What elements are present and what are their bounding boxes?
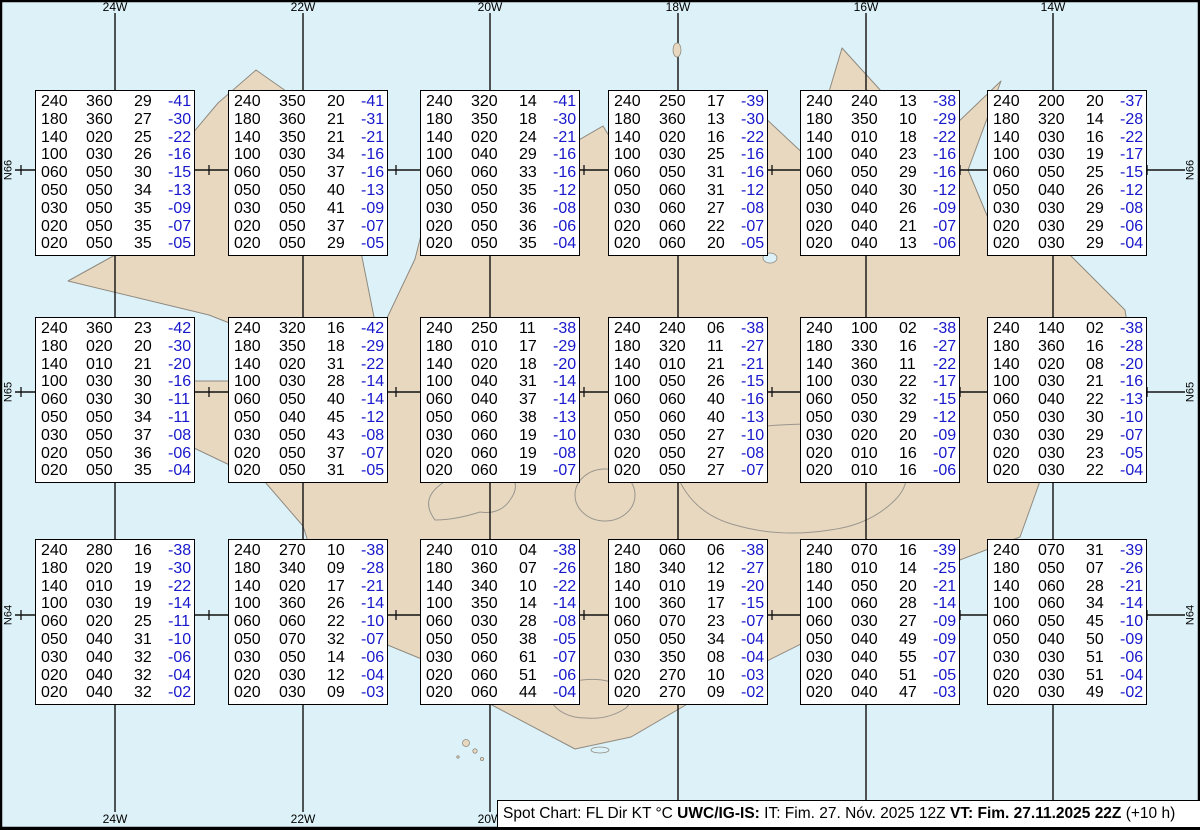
- spot-box-r1c1: 24036029-4118036027-3014002025-221000302…: [35, 90, 195, 256]
- level-row: 18036016-28: [993, 338, 1146, 356]
- level-row: 02005031-05: [234, 462, 387, 480]
- dir-cell: 040: [851, 649, 899, 667]
- temp-cell: -13: [361, 182, 388, 200]
- temp-cell: -02: [1120, 684, 1147, 702]
- dir-cell: 070: [1038, 542, 1086, 560]
- dir-cell: 060: [471, 667, 519, 685]
- level-row: 24001004-38: [426, 542, 579, 560]
- level-row: 06003028-08: [426, 613, 579, 631]
- temp-cell: -15: [741, 595, 768, 613]
- fl-cell: 050: [614, 182, 659, 200]
- fl-cell: 140: [993, 129, 1038, 147]
- dir-cell: 060: [1038, 595, 1086, 613]
- kt-cell: 25: [1086, 164, 1120, 182]
- dir-cell: 030: [471, 613, 519, 631]
- level-row: 02003029-04: [993, 235, 1146, 253]
- temp-cell: -22: [168, 578, 195, 596]
- fl-cell: 020: [426, 235, 471, 253]
- fl-cell: 020: [41, 684, 86, 702]
- temp-cell: -21: [1120, 578, 1147, 596]
- temp-cell: -26: [553, 560, 580, 578]
- dir-cell: 270: [659, 684, 707, 702]
- temp-cell: -04: [741, 631, 768, 649]
- dir-cell: 050: [86, 218, 134, 236]
- fl-cell: 180: [234, 111, 279, 129]
- temp-cell: -09: [933, 200, 960, 218]
- kt-cell: 16: [1086, 338, 1120, 356]
- fl-cell: 050: [614, 631, 659, 649]
- kt-cell: 49: [1086, 684, 1120, 702]
- temp-cell: -06: [168, 649, 195, 667]
- kt-cell: 11: [899, 356, 933, 374]
- dir-cell: 350: [851, 111, 899, 129]
- temp-cell: -29: [933, 111, 960, 129]
- dir-cell: 360: [86, 320, 134, 338]
- spot-box-r2c5: 24010002-3818033016-2714036011-221000302…: [800, 317, 960, 483]
- fl-cell: 180: [234, 560, 279, 578]
- kt-cell: 35: [519, 235, 553, 253]
- fl-cell: 180: [41, 338, 86, 356]
- level-row: 18034009-28: [234, 560, 387, 578]
- fl-cell: 240: [806, 93, 851, 111]
- fl-cell: 020: [614, 218, 659, 236]
- level-row: 05004026-12: [993, 182, 1146, 200]
- level-row: 18035018-29: [234, 338, 387, 356]
- dir-cell: 040: [851, 631, 899, 649]
- level-row: 06005025-15: [993, 164, 1146, 182]
- temp-cell: -14: [553, 595, 580, 613]
- kt-cell: 31: [707, 164, 741, 182]
- kt-cell: 40: [327, 391, 361, 409]
- temp-cell: -38: [361, 542, 388, 560]
- dir-cell: 050: [86, 200, 134, 218]
- dir-cell: 060: [471, 427, 519, 445]
- fl-cell: 050: [234, 409, 279, 427]
- temp-cell: -15: [933, 391, 960, 409]
- temp-cell: -06: [553, 667, 580, 685]
- level-row: 06006033-16: [426, 164, 579, 182]
- parallel-label-right-N64: N64: [1186, 605, 1197, 625]
- level-row: 24024006-38: [614, 320, 767, 338]
- kt-cell: 23: [899, 146, 933, 164]
- kt-cell: 29: [1086, 218, 1120, 236]
- fl-cell: 180: [993, 560, 1038, 578]
- level-row: 14005020-21: [806, 578, 959, 596]
- level-row: 24010002-38: [806, 320, 959, 338]
- fl-cell: 140: [234, 578, 279, 596]
- fl-cell: 050: [426, 631, 471, 649]
- kt-cell: 34: [134, 182, 168, 200]
- kt-cell: 35: [134, 462, 168, 480]
- fl-cell: 030: [993, 427, 1038, 445]
- temp-cell: -09: [933, 613, 960, 631]
- spot-box-r1c2: 24035020-4118036021-3114035021-211000303…: [228, 90, 388, 256]
- level-row: 18036021-31: [234, 111, 387, 129]
- temp-cell: -05: [361, 462, 388, 480]
- dir-cell: 020: [86, 338, 134, 356]
- kt-cell: 27: [707, 427, 741, 445]
- dir-cell: 060: [471, 164, 519, 182]
- temp-cell: -08: [741, 200, 768, 218]
- kt-cell: 19: [1086, 146, 1120, 164]
- level-row: 18036007-26: [426, 560, 579, 578]
- temp-cell: -12: [933, 182, 960, 200]
- dir-cell: 050: [279, 164, 327, 182]
- dir-cell: 030: [279, 146, 327, 164]
- dir-cell: 050: [659, 462, 707, 480]
- temp-cell: -38: [553, 542, 580, 560]
- kt-cell: 07: [519, 560, 553, 578]
- dir-cell: 040: [471, 373, 519, 391]
- meridian-label-top-18W: 18W: [666, 1, 691, 13]
- kt-cell: 29: [519, 146, 553, 164]
- level-row: 02005037-07: [234, 445, 387, 463]
- temp-cell: -07: [361, 218, 388, 236]
- level-row: 02004051-05: [806, 667, 959, 685]
- fl-cell: 030: [426, 427, 471, 445]
- kt-cell: 36: [519, 200, 553, 218]
- temp-cell: -08: [553, 613, 580, 631]
- dir-cell: 010: [659, 356, 707, 374]
- level-row: 03005036-08: [426, 200, 579, 218]
- dir-cell: 100: [851, 320, 899, 338]
- kt-cell: 26: [1086, 182, 1120, 200]
- kt-cell: 19: [134, 595, 168, 613]
- temp-cell: -06: [553, 218, 580, 236]
- dir-cell: 030: [1038, 667, 1086, 685]
- level-row: 05006031-12: [614, 182, 767, 200]
- dir-cell: 050: [471, 182, 519, 200]
- meridian-label-top-14W: 14W: [1041, 1, 1066, 13]
- fl-cell: 020: [41, 218, 86, 236]
- level-row: 18032014-28: [993, 111, 1146, 129]
- temp-cell: -14: [553, 373, 580, 391]
- temp-cell: -38: [553, 320, 580, 338]
- fl-cell: 030: [806, 200, 851, 218]
- temp-cell: -27: [741, 560, 768, 578]
- level-row: 06004037-14: [426, 391, 579, 409]
- fl-cell: 180: [41, 560, 86, 578]
- level-row: 18005007-26: [993, 560, 1146, 578]
- dir-cell: 050: [86, 462, 134, 480]
- spot-box-r2c1: 24036023-4218002020-3014001021-201000303…: [35, 317, 195, 483]
- spot-box-r3c6: 24007031-3918005007-2614006028-211000603…: [987, 539, 1147, 705]
- dir-cell: 030: [279, 373, 327, 391]
- kt-cell: 19: [519, 445, 553, 463]
- temp-cell: -11: [168, 391, 194, 409]
- dir-cell: 030: [86, 391, 134, 409]
- kt-cell: 30: [134, 373, 168, 391]
- level-row: 05004049-09: [806, 631, 959, 649]
- fl-cell: 030: [614, 200, 659, 218]
- dir-cell: 030: [1038, 427, 1086, 445]
- fl-cell: 180: [614, 338, 659, 356]
- temp-cell: -16: [361, 164, 388, 182]
- level-row: 14002018-20: [426, 356, 579, 374]
- kt-cell: 06: [707, 542, 741, 560]
- fl-cell: 100: [234, 373, 279, 391]
- dir-cell: 240: [851, 93, 899, 111]
- temp-cell: -07: [933, 445, 960, 463]
- dir-cell: 060: [659, 182, 707, 200]
- fl-cell: 020: [41, 667, 86, 685]
- temp-cell: -38: [933, 320, 960, 338]
- kt-cell: 23: [707, 613, 741, 631]
- kt-cell: 22: [1086, 391, 1120, 409]
- fl-cell: 180: [426, 560, 471, 578]
- fl-cell: 100: [426, 146, 471, 164]
- footer-text-segment: VT: Fim. 27.11.2025 22Z: [950, 805, 1121, 823]
- temp-cell: -22: [553, 578, 580, 596]
- level-row: 03002020-09: [806, 427, 959, 445]
- temp-cell: -22: [741, 129, 768, 147]
- dir-cell: 320: [279, 320, 327, 338]
- kt-cell: 31: [327, 356, 361, 374]
- temp-cell: -15: [168, 164, 195, 182]
- fl-cell: 050: [234, 631, 279, 649]
- fl-cell: 240: [234, 93, 279, 111]
- fl-cell: 180: [426, 111, 471, 129]
- kt-cell: 45: [1086, 613, 1120, 631]
- temp-cell: -08: [741, 445, 768, 463]
- dir-cell: 140: [1038, 320, 1086, 338]
- dir-cell: 020: [1038, 356, 1086, 374]
- kt-cell: 40: [707, 391, 741, 409]
- fl-cell: 050: [234, 182, 279, 200]
- spot-box-r3c4: 24006006-3818034012-2714001019-201003601…: [608, 539, 768, 705]
- spot-box-r3c3: 24001004-3818036007-2614034010-221003501…: [420, 539, 580, 705]
- fl-cell: 020: [993, 684, 1038, 702]
- kt-cell: 32: [327, 631, 361, 649]
- kt-cell: 21: [899, 218, 933, 236]
- temp-cell: -10: [741, 427, 768, 445]
- fl-cell: 020: [993, 218, 1038, 236]
- temp-cell: -14: [553, 391, 580, 409]
- fl-cell: 020: [993, 667, 1038, 685]
- fl-cell: 100: [806, 373, 851, 391]
- kt-cell: 21: [327, 129, 361, 147]
- temp-cell: -42: [361, 320, 388, 338]
- kt-cell: 45: [327, 409, 361, 427]
- kt-cell: 22: [327, 613, 361, 631]
- fl-cell: 020: [426, 684, 471, 702]
- kt-cell: 35: [134, 218, 168, 236]
- temp-cell: -10: [553, 427, 580, 445]
- fl-cell: 030: [426, 200, 471, 218]
- temp-cell: -09: [933, 631, 960, 649]
- temp-cell: -07: [361, 631, 388, 649]
- footer-text-segment: UWC/IG-IS:: [677, 805, 760, 823]
- level-row: 02027010-03: [614, 667, 767, 685]
- spot-box-r3c1: 24028016-3818002019-3014001019-221000301…: [35, 539, 195, 705]
- fl-cell: 100: [993, 595, 1038, 613]
- dir-cell: 360: [659, 111, 707, 129]
- level-row: 02004032-02: [41, 684, 194, 702]
- level-row: 02005035-07: [41, 218, 194, 236]
- kt-cell: 21: [134, 356, 168, 374]
- level-row: 05005034-04: [614, 631, 767, 649]
- dir-cell: 050: [659, 445, 707, 463]
- temp-cell: -02: [741, 684, 768, 702]
- level-row: 06004022-13: [993, 391, 1146, 409]
- temp-cell: -07: [741, 218, 768, 236]
- dir-cell: 030: [1038, 409, 1086, 427]
- fl-cell: 100: [806, 595, 851, 613]
- spot-box-r1c5: 24024013-3818035010-2914001018-221000402…: [800, 90, 960, 256]
- level-row: 06005040-14: [234, 391, 387, 409]
- kt-cell: 28: [519, 613, 553, 631]
- temp-cell: -30: [168, 560, 195, 578]
- fl-cell: 240: [993, 542, 1038, 560]
- kt-cell: 14: [519, 93, 553, 111]
- meridian-label-bottom-24W: 24W: [103, 813, 128, 825]
- fl-cell: 020: [426, 462, 471, 480]
- dir-cell: 020: [659, 129, 707, 147]
- level-row: 05006040-13: [614, 409, 767, 427]
- temp-cell: -04: [168, 667, 195, 685]
- kt-cell: 12: [327, 667, 361, 685]
- dir-cell: 030: [279, 684, 327, 702]
- temp-cell: -07: [933, 218, 960, 236]
- level-row: 03003029-07: [993, 427, 1146, 445]
- footer-text-segment: (+10 h): [1121, 805, 1175, 823]
- fl-cell: 180: [806, 338, 851, 356]
- level-row: 05005040-13: [234, 182, 387, 200]
- temp-cell: -14: [1120, 595, 1147, 613]
- temp-cell: -08: [553, 200, 580, 218]
- level-row: 02001016-06: [806, 462, 959, 480]
- fl-cell: 050: [426, 182, 471, 200]
- kt-cell: 14: [899, 560, 933, 578]
- level-row: 14001021-21: [614, 356, 767, 374]
- kt-cell: 16: [899, 542, 933, 560]
- kt-cell: 28: [327, 373, 361, 391]
- dir-cell: 050: [86, 409, 134, 427]
- kt-cell: 55: [899, 649, 933, 667]
- temp-cell: -27: [933, 338, 960, 356]
- dir-cell: 360: [279, 595, 327, 613]
- parallel-label-left-N65: N65: [4, 382, 15, 402]
- dir-cell: 020: [279, 578, 327, 596]
- kt-cell: 32: [134, 667, 168, 685]
- fl-cell: 240: [426, 320, 471, 338]
- level-row: 24025017-39: [614, 93, 767, 111]
- kt-cell: 11: [707, 338, 741, 356]
- kt-cell: 12: [707, 560, 741, 578]
- dir-cell: 030: [1038, 200, 1086, 218]
- dir-cell: 350: [279, 338, 327, 356]
- kt-cell: 34: [707, 631, 741, 649]
- fl-cell: 060: [234, 613, 279, 631]
- dir-cell: 040: [1038, 391, 1086, 409]
- temp-cell: -21: [933, 578, 960, 596]
- fl-cell: 060: [806, 164, 851, 182]
- dir-cell: 040: [1038, 182, 1086, 200]
- kt-cell: 27: [134, 111, 168, 129]
- fl-cell: 140: [806, 129, 851, 147]
- fl-cell: 050: [41, 182, 86, 200]
- kt-cell: 06: [707, 320, 741, 338]
- level-row: 02003012-04: [234, 667, 387, 685]
- dir-cell: 030: [1038, 129, 1086, 147]
- fl-cell: 060: [806, 391, 851, 409]
- dir-cell: 030: [86, 146, 134, 164]
- kt-cell: 28: [1086, 578, 1120, 596]
- spot-box-r3c2: 24027010-3818034009-2814002017-211003602…: [228, 539, 388, 705]
- dir-cell: 020: [851, 427, 899, 445]
- fl-cell: 060: [426, 164, 471, 182]
- fl-cell: 020: [614, 667, 659, 685]
- level-row: 03003051-06: [993, 649, 1146, 667]
- temp-cell: -42: [168, 320, 195, 338]
- fl-cell: 060: [41, 391, 86, 409]
- kt-cell: 11: [519, 320, 553, 338]
- fl-cell: 240: [614, 93, 659, 111]
- temp-cell: -15: [741, 373, 768, 391]
- fl-cell: 020: [426, 445, 471, 463]
- fl-cell: 140: [41, 356, 86, 374]
- temp-cell: -04: [1120, 462, 1147, 480]
- temp-cell: -28: [1120, 111, 1147, 129]
- temp-cell: -37: [1120, 93, 1147, 111]
- temp-cell: -10: [1120, 613, 1147, 631]
- kt-cell: 29: [1086, 427, 1120, 445]
- fl-cell: 020: [806, 667, 851, 685]
- kt-cell: 37: [327, 164, 361, 182]
- kt-cell: 16: [1086, 129, 1120, 147]
- spot-box-r1c3: 24032014-4118035018-3014002024-211000402…: [420, 90, 580, 256]
- level-row: 10003019-14: [41, 595, 194, 613]
- fl-cell: 140: [426, 356, 471, 374]
- level-row: 02003049-02: [993, 684, 1146, 702]
- dir-cell: 030: [86, 595, 134, 613]
- fl-cell: 180: [41, 111, 86, 129]
- fl-cell: 100: [993, 146, 1038, 164]
- level-row: 06007023-07: [614, 613, 767, 631]
- kt-cell: 10: [707, 667, 741, 685]
- temp-cell: -05: [1120, 445, 1147, 463]
- level-row: 02001016-07: [806, 445, 959, 463]
- level-row: 14001019-22: [41, 578, 194, 596]
- dir-cell: 050: [279, 218, 327, 236]
- footer-info-bar: Spot Chart: FL Dir KT °C UWC/IG-IS: IT: …: [497, 800, 1200, 827]
- level-row: 03006019-10: [426, 427, 579, 445]
- temp-cell: -30: [741, 111, 768, 129]
- temp-cell: -08: [553, 445, 580, 463]
- kt-cell: 50: [1086, 631, 1120, 649]
- fl-cell: 180: [806, 560, 851, 578]
- kt-cell: 29: [134, 93, 168, 111]
- level-row: 10036026-14: [234, 595, 387, 613]
- dir-cell: 020: [86, 129, 134, 147]
- fl-cell: 050: [993, 409, 1038, 427]
- spot-box-r1c6: 24020020-3718032014-2814003016-221000301…: [987, 90, 1147, 256]
- kt-cell: 35: [519, 182, 553, 200]
- temp-cell: -30: [168, 111, 195, 129]
- level-row: 18033016-27: [806, 338, 959, 356]
- spot-box-r3c5: 24007016-3918001014-2514005020-211000602…: [800, 539, 960, 705]
- fl-cell: 020: [426, 667, 471, 685]
- temp-cell: -13: [553, 409, 580, 427]
- level-row: 14036011-22: [806, 356, 959, 374]
- level-row: 10004029-16: [426, 146, 579, 164]
- level-row: 02005027-07: [614, 462, 767, 480]
- fl-cell: 140: [614, 129, 659, 147]
- temp-cell: -20: [741, 578, 768, 596]
- level-row: 06003030-11: [41, 391, 194, 409]
- temp-cell: -12: [553, 182, 580, 200]
- fl-cell: 030: [614, 427, 659, 445]
